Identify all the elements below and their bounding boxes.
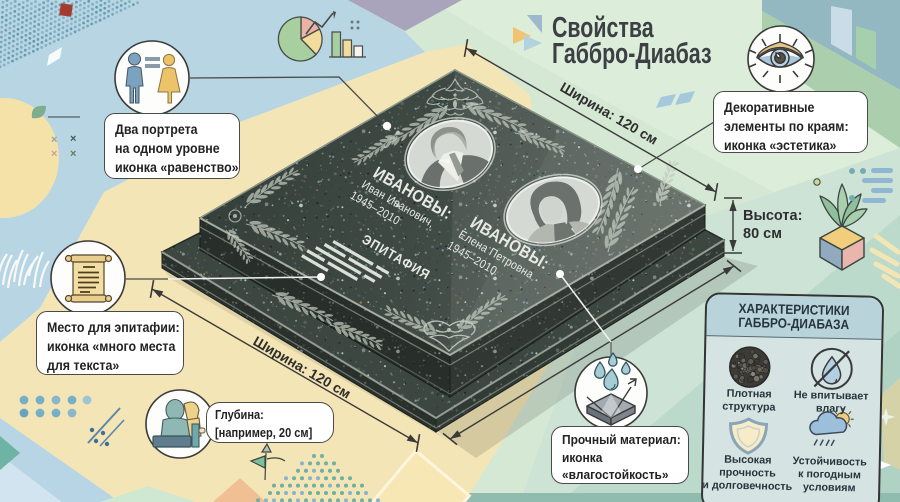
- svg-text:влагу: влагу: [816, 402, 846, 415]
- svg-text:×: ×: [51, 148, 57, 160]
- svg-text:Не впитывает: Не впитывает: [794, 389, 869, 403]
- svg-text:к погодным: к погодным: [798, 468, 861, 481]
- svg-text:Плотная: Плотная: [727, 388, 772, 401]
- svg-text:условиям: условиям: [803, 481, 856, 494]
- svg-text:структура: структура: [722, 401, 776, 414]
- svg-text:Устойчивость: Устойчивость: [793, 455, 868, 469]
- svg-text:×: ×: [51, 134, 57, 146]
- svg-text:и долговечность: и долговечность: [703, 479, 793, 493]
- svg-text:прочность: прочность: [719, 466, 776, 479]
- svg-text:Высокая: Высокая: [724, 454, 772, 467]
- svg-text:×: ×: [70, 133, 76, 145]
- svg-text:×: ×: [70, 148, 76, 160]
